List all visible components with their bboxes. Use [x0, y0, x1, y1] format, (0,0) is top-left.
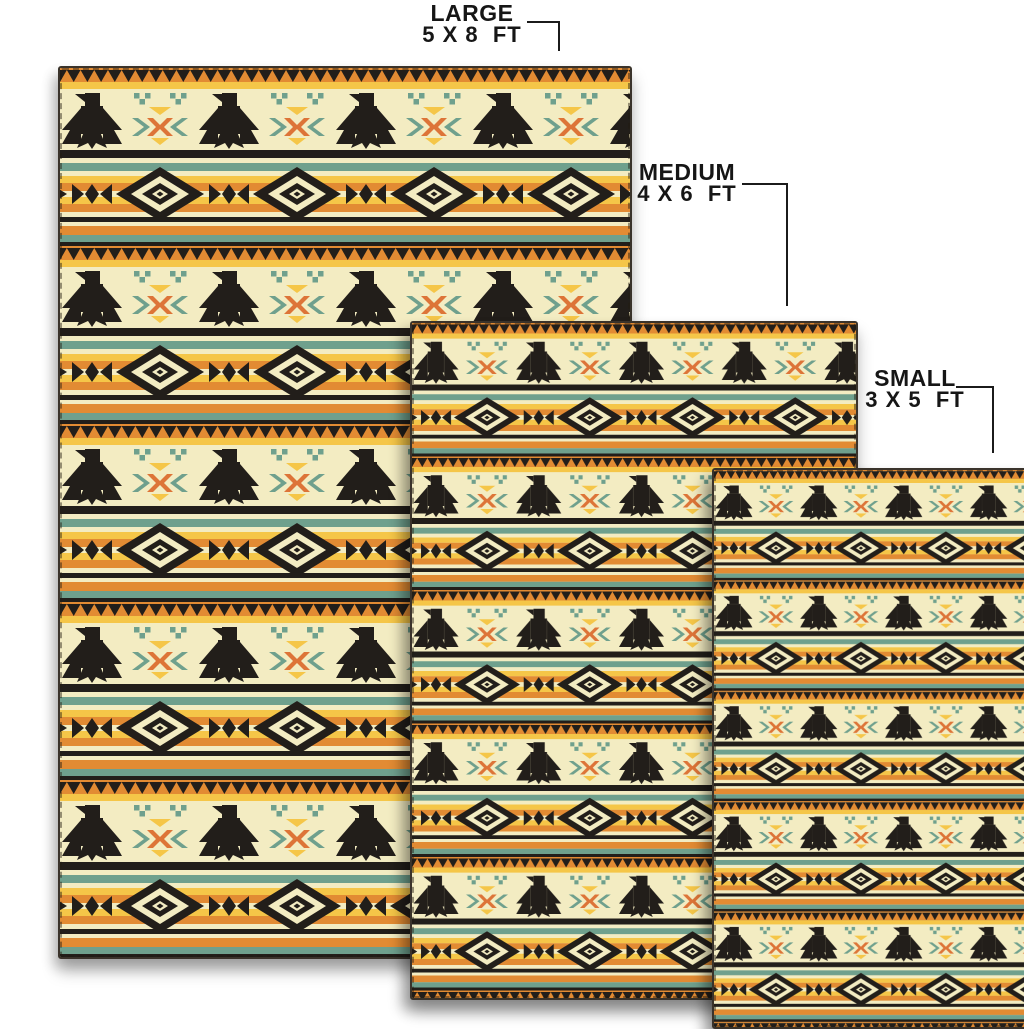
- rug-small-pattern: [714, 470, 1024, 1027]
- label-medium: MEDIUM 4 X 6 FT: [607, 161, 767, 204]
- label-large: LARGE 5 X 8 FT: [392, 2, 552, 45]
- label-medium-name: MEDIUM: [607, 161, 767, 183]
- label-small: SMALL 3 X 5 FT: [835, 367, 995, 410]
- label-small-name: SMALL: [835, 367, 995, 389]
- label-large-name: LARGE: [392, 2, 552, 24]
- rug-small: [712, 468, 1024, 1029]
- label-small-size: 3 X 5 FT: [835, 389, 995, 410]
- label-medium-size: 4 X 6 FT: [607, 183, 767, 204]
- product-image: LARGE 5 X 8 FT MEDIUM 4 X 6 FT SMALL 3 X…: [0, 0, 1024, 1024]
- label-large-size: 5 X 8 FT: [392, 24, 552, 45]
